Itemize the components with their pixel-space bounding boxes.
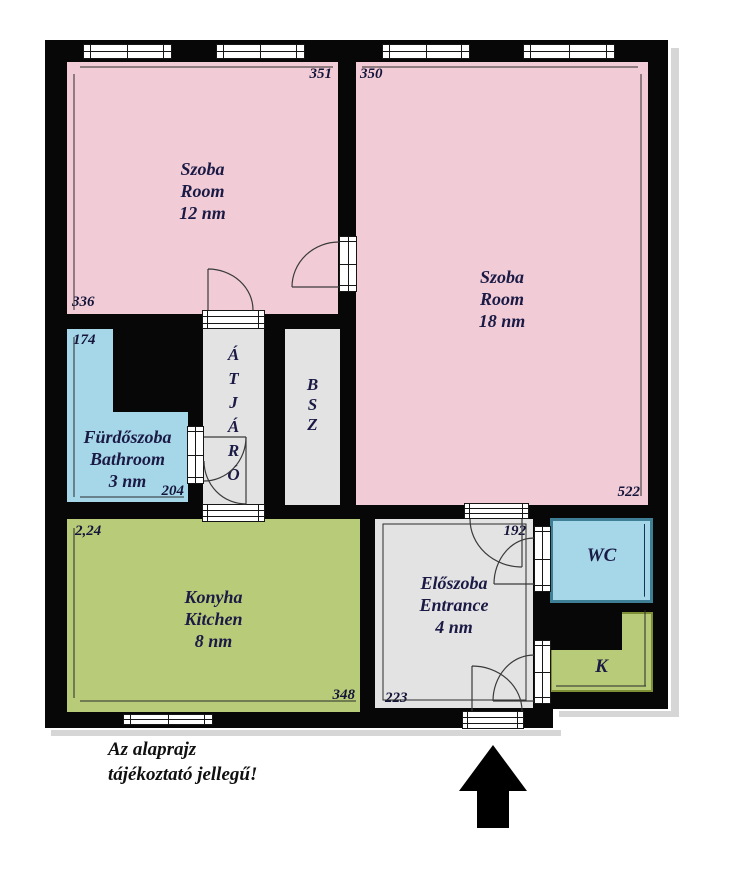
disclaimer-note: Az alaprajz tájékoztató jellegű!: [108, 737, 348, 787]
disclaimer-line-1: Az alaprajz: [108, 739, 196, 760]
dimension-lines: [74, 67, 646, 701]
floorplan-canvas: 351 336 Szoba Room 12 nm 350 522 Szoba R…: [0, 0, 730, 889]
disclaimer-line-2: tájékoztató jellegű!: [108, 764, 257, 785]
north-arrow-icon: [459, 745, 527, 828]
door-swing-arcs: [204, 242, 534, 711]
